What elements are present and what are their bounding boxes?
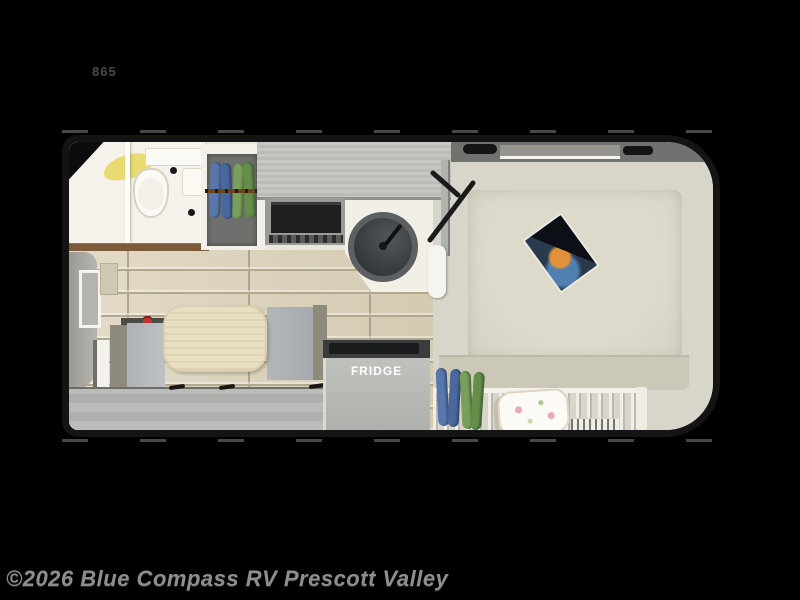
page: { "page": { "background_color": "#000000… xyxy=(0,0,800,600)
top-edge-artifact xyxy=(62,130,720,133)
floorplan-image[interactable]: FRIDGE xyxy=(62,135,720,437)
bottom-edge-artifact xyxy=(62,439,720,442)
watermark: ©2026 Blue Compass RV Prescott Valley xyxy=(6,566,448,592)
model-number-label: 865 xyxy=(92,64,117,79)
entry-door-swing-icon xyxy=(69,142,713,430)
